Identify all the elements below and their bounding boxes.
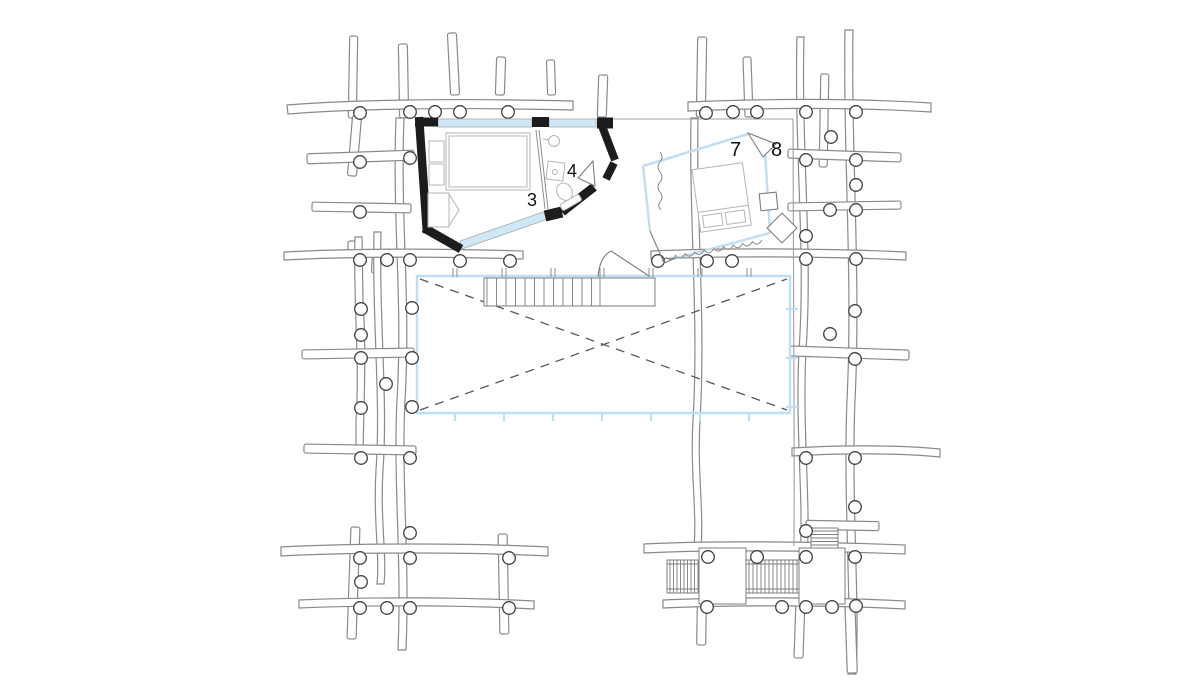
tick <box>407 309 798 407</box>
joint <box>727 106 740 119</box>
joint <box>702 551 715 564</box>
toilet <box>550 178 582 211</box>
stool <box>759 192 778 211</box>
joint <box>404 527 417 540</box>
joint <box>355 329 368 342</box>
joint <box>700 107 713 120</box>
window <box>460 211 548 249</box>
joint <box>824 204 837 217</box>
joint <box>849 501 862 514</box>
floor-plan-page: 3 4 7 8 <box>0 0 1200 695</box>
joint <box>850 154 863 167</box>
room-label: 4 <box>567 161 577 181</box>
joint <box>701 255 714 268</box>
joint <box>404 552 417 565</box>
joint <box>726 255 739 268</box>
joint <box>800 154 813 167</box>
joint <box>800 601 813 614</box>
log <box>495 57 505 95</box>
log <box>546 60 555 95</box>
joint <box>355 576 368 589</box>
side-table <box>767 213 797 243</box>
joint <box>503 552 516 565</box>
log <box>395 118 407 650</box>
hatch-swing <box>598 251 649 277</box>
joint <box>381 602 394 615</box>
joint <box>850 253 863 266</box>
entry-stairs <box>667 528 845 604</box>
joint <box>454 255 467 268</box>
pillow <box>702 213 722 228</box>
wall <box>419 117 427 233</box>
sink-tap-line <box>543 139 549 140</box>
joint <box>354 206 367 219</box>
room-3-suite: 3 4 <box>415 117 615 249</box>
joint <box>849 551 862 564</box>
pillow <box>429 164 444 185</box>
joint <box>429 106 442 119</box>
sink <box>549 136 560 147</box>
joint <box>406 302 419 315</box>
room-7-cabin: 7 8 <box>643 133 797 263</box>
joint <box>404 452 417 465</box>
joint <box>355 452 368 465</box>
joint <box>355 402 368 415</box>
wardrobe <box>428 193 449 227</box>
washbasin <box>546 161 565 181</box>
joint <box>800 230 813 243</box>
joint <box>503 602 516 615</box>
joint <box>355 352 368 365</box>
wall <box>424 228 461 249</box>
wardrobe-door <box>449 194 459 226</box>
joint <box>701 601 714 614</box>
joint <box>800 551 813 564</box>
log <box>447 33 459 95</box>
log <box>644 542 905 554</box>
wall <box>602 126 615 160</box>
bed <box>446 133 530 190</box>
wall <box>606 163 614 179</box>
pillow <box>429 141 444 162</box>
joint <box>824 328 837 341</box>
joint <box>354 602 367 615</box>
joint <box>652 255 665 268</box>
pillow <box>725 210 745 225</box>
joint <box>502 106 515 119</box>
floor-plan-canvas: 3 4 7 8 <box>0 0 1200 695</box>
window <box>438 119 532 127</box>
joint <box>800 525 813 538</box>
door-leaf <box>578 161 595 186</box>
joint <box>850 600 863 613</box>
room-label: 8 <box>771 139 782 161</box>
log <box>788 201 901 211</box>
joint <box>850 179 863 192</box>
wall <box>545 212 562 216</box>
joint <box>751 551 764 564</box>
joint <box>825 131 838 144</box>
void-ticks-cyan <box>407 309 798 421</box>
partition-wall <box>536 130 548 209</box>
joint <box>454 106 467 119</box>
room-label: 7 <box>730 139 741 161</box>
joint <box>849 452 862 465</box>
joint <box>849 353 862 366</box>
joint <box>406 352 419 365</box>
stair-run <box>667 560 700 593</box>
joint <box>800 452 813 465</box>
joint <box>826 601 839 614</box>
joint <box>406 401 419 414</box>
joint <box>354 156 367 169</box>
room-label: 3 <box>527 190 537 210</box>
joint <box>380 378 393 391</box>
joint <box>404 254 417 267</box>
joint <box>355 303 368 316</box>
log <box>792 446 940 457</box>
joint <box>354 254 367 267</box>
joint <box>850 106 863 119</box>
log <box>374 232 385 584</box>
stair-flight <box>484 278 655 306</box>
joint <box>404 602 417 615</box>
joint <box>404 106 417 119</box>
joint <box>751 106 764 119</box>
joint <box>404 152 417 165</box>
joint <box>354 552 367 565</box>
joint <box>504 255 517 268</box>
joint <box>850 204 863 217</box>
washbasin-counter <box>546 161 565 181</box>
log <box>597 75 607 117</box>
joint <box>800 253 813 266</box>
joint <box>354 107 367 120</box>
joint <box>776 601 789 614</box>
window <box>549 119 596 127</box>
joint <box>381 254 394 267</box>
joint <box>800 106 813 119</box>
bed <box>692 163 751 232</box>
joint <box>849 305 862 318</box>
